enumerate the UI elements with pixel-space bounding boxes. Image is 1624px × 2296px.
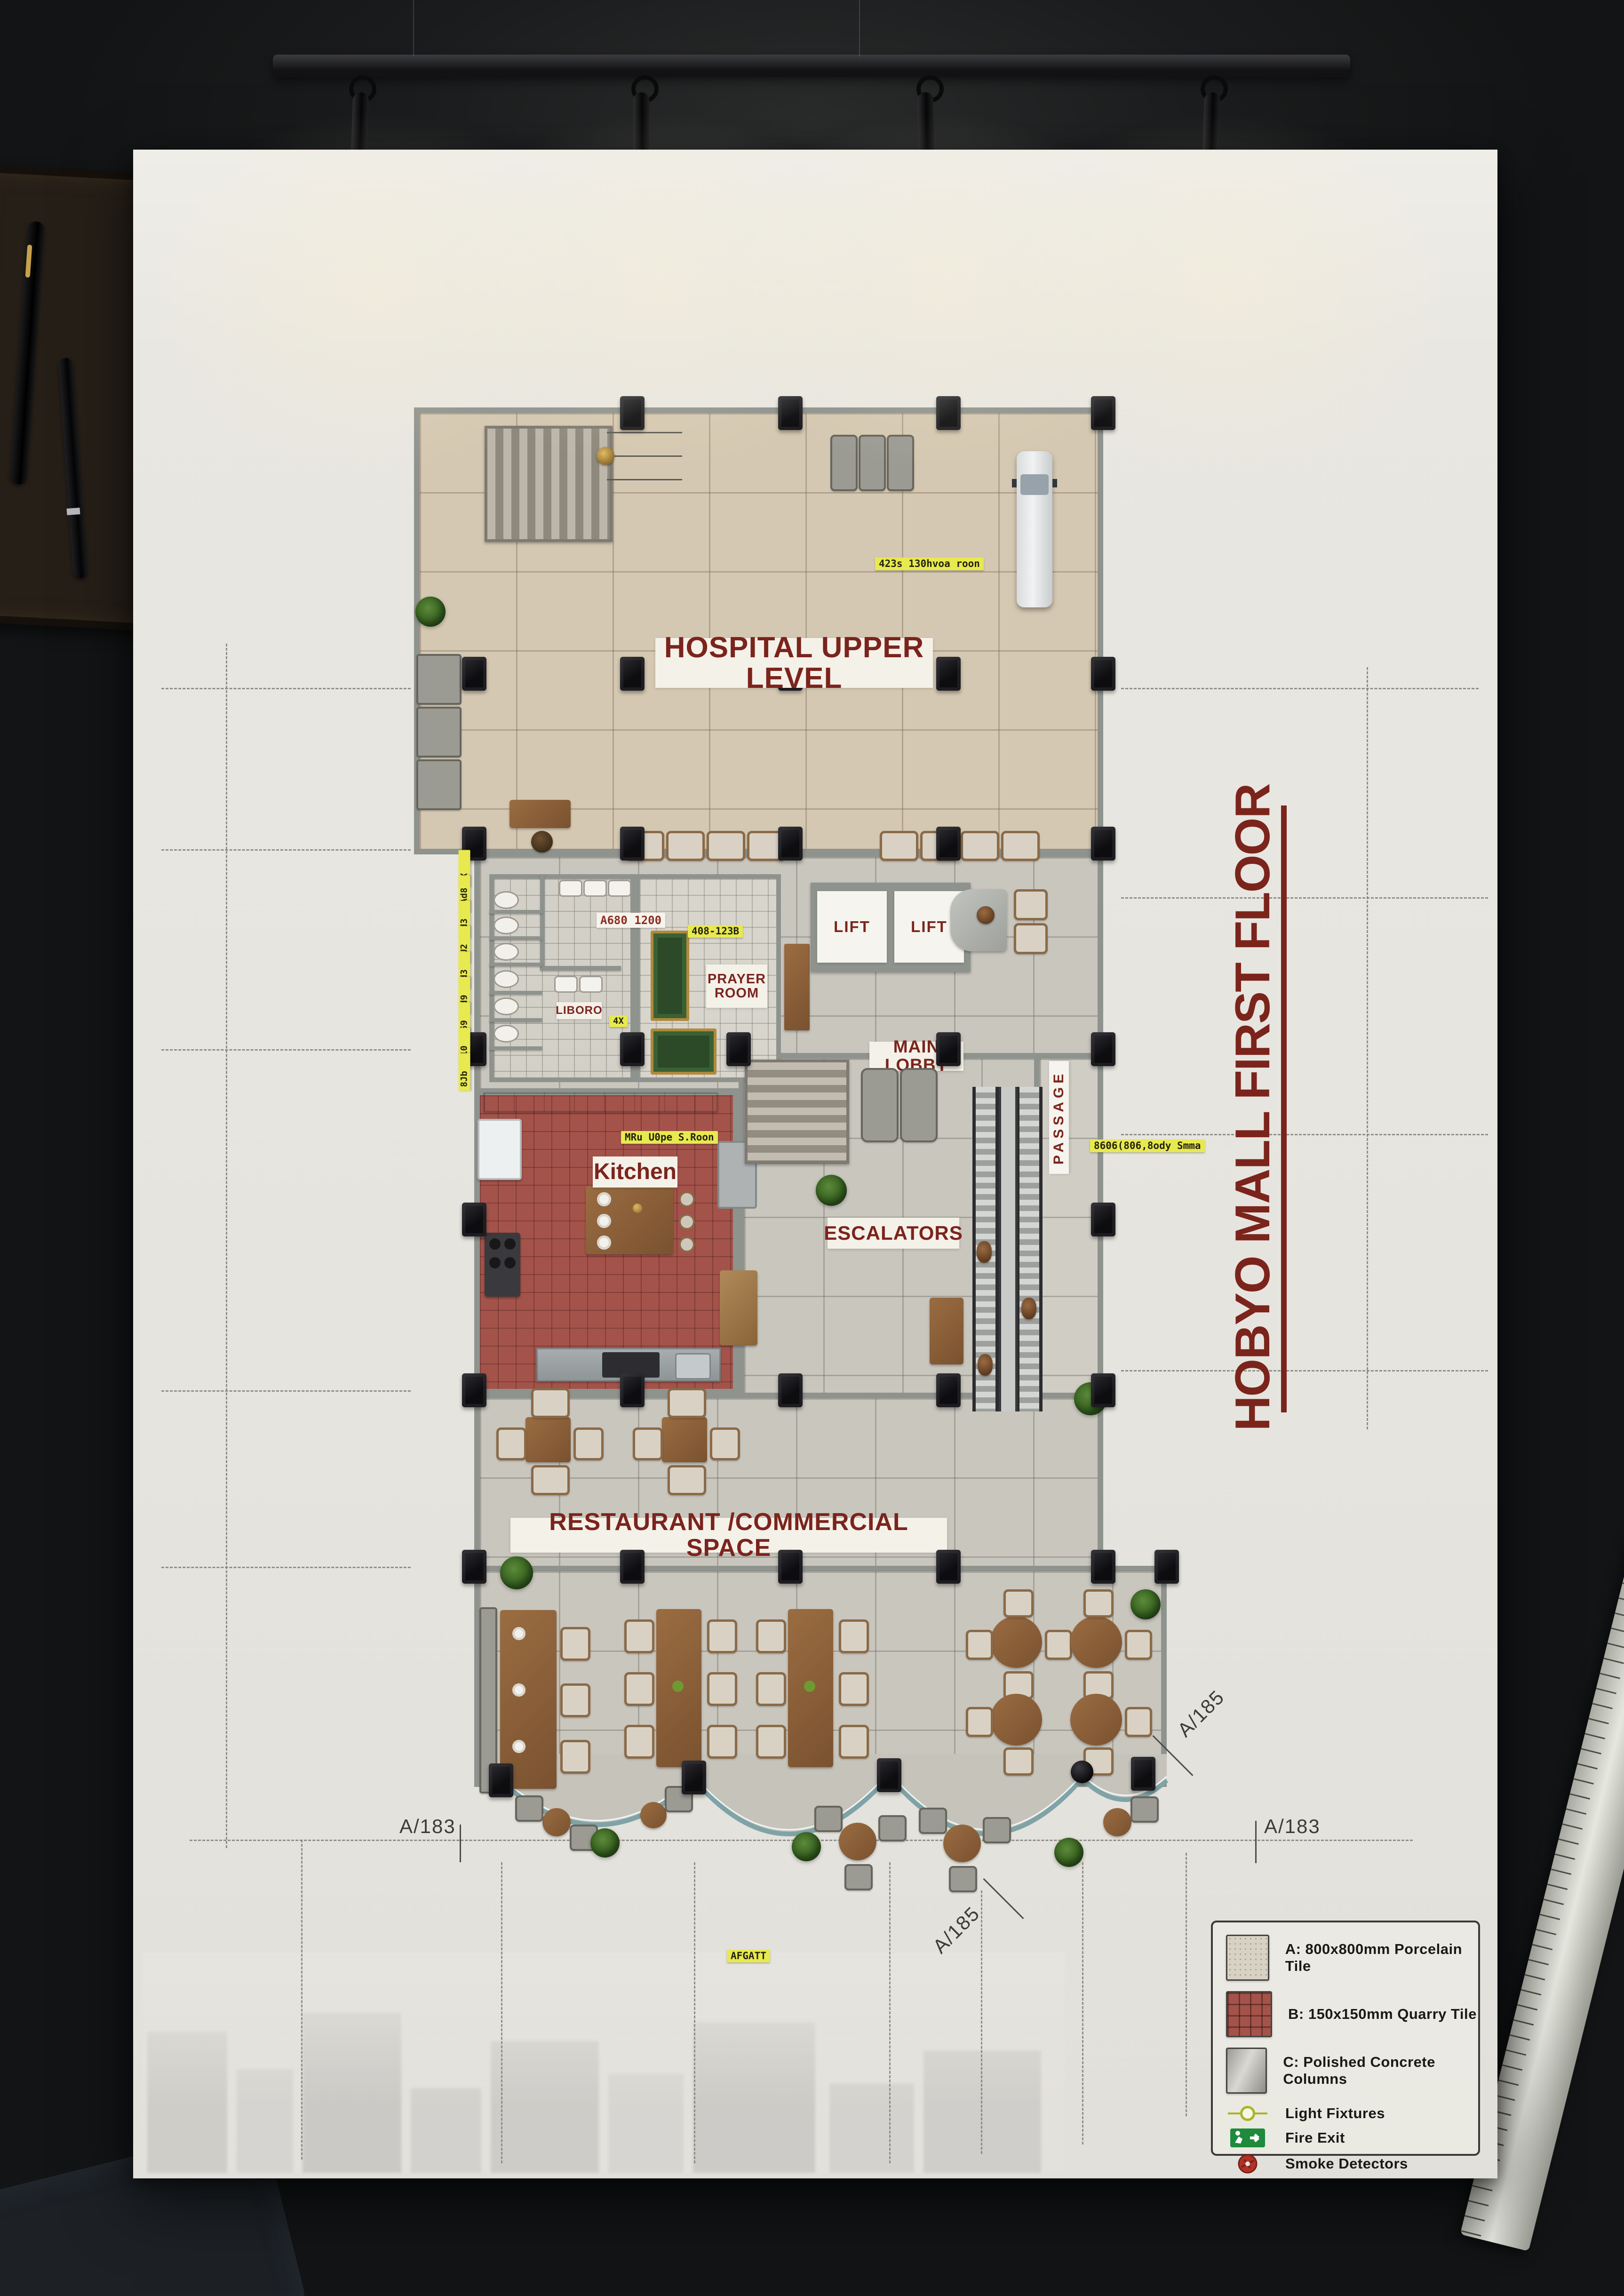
cafe-chair [878, 1815, 907, 1842]
stool [679, 1236, 695, 1252]
grid-ref-a185-lower: A/185 [929, 1902, 985, 1958]
dining-chair [966, 1630, 993, 1660]
lounge-chair [707, 831, 745, 861]
column [778, 827, 803, 861]
statue [597, 447, 614, 465]
bench [930, 1298, 963, 1364]
place-setting [512, 1740, 525, 1753]
dining-chair [624, 1619, 654, 1653]
cafe-table [839, 1823, 876, 1860]
lounger [900, 1068, 938, 1142]
column [620, 1032, 645, 1066]
stair-rail [607, 432, 682, 433]
prayer-rug [651, 1028, 716, 1075]
grid-line [161, 1049, 411, 1051]
grid-line [1121, 1370, 1488, 1371]
toilet-wall [540, 966, 621, 971]
plant [590, 1828, 620, 1858]
column [1091, 827, 1115, 861]
concrete-swatch-icon [1226, 2048, 1267, 2094]
hospital-desk [509, 800, 571, 828]
burner [489, 1257, 501, 1268]
dining-chair [1045, 1630, 1072, 1660]
toilet-label: LIBORO [557, 1002, 602, 1019]
passage-label: PASSAGE [1049, 1061, 1069, 1174]
sink [559, 880, 582, 897]
column [778, 1373, 803, 1407]
cafe-chair [983, 1817, 1011, 1843]
escalator-lane [1016, 1087, 1043, 1411]
toilet [494, 917, 519, 934]
column [462, 1373, 486, 1407]
legend-row-light: Light Fixtures [1226, 2105, 1478, 2122]
dining-chair [1083, 1589, 1114, 1618]
cafe-table [943, 1825, 981, 1862]
toilet [494, 970, 519, 988]
dining-chair [839, 1725, 869, 1759]
escalators-label-text: ESCALATORS [824, 1223, 963, 1244]
column [936, 396, 961, 430]
legend-row-smoke: Smoke Detectors [1226, 2154, 1478, 2174]
track-light-bar [273, 55, 1350, 77]
column [620, 1373, 645, 1407]
lounge-chair [1001, 831, 1040, 861]
cafe-table [542, 1808, 571, 1836]
burner [489, 1238, 501, 1250]
legend-label: C: Polished Concrete Columns [1283, 2054, 1478, 2088]
dining-table [525, 1417, 571, 1462]
stall-partition [489, 910, 542, 914]
skyline-fade [143, 1952, 1065, 2173]
grid-line [981, 1890, 982, 2154]
grid-ref-a185-upper: A/185 [1173, 1686, 1229, 1742]
column [778, 396, 803, 430]
dining-chair [633, 1427, 663, 1460]
dining-chair [707, 1619, 737, 1653]
legend-label: Fire Exit [1285, 2129, 1345, 2146]
column [1154, 1550, 1179, 1584]
column [620, 396, 645, 430]
lobby-chair [1014, 889, 1048, 920]
place-setting [512, 1627, 525, 1640]
grid-line [1186, 1853, 1187, 2116]
stair-rail [607, 479, 682, 480]
lobby-chair [1014, 923, 1048, 954]
dim-chip-prayer: 408-123B [688, 925, 743, 938]
dining-chair [839, 1672, 869, 1706]
stall-partition [489, 936, 542, 940]
dining-chair [1125, 1630, 1152, 1660]
legend-label: B: 150x150mm Quarry Tile [1288, 2006, 1477, 2023]
column [682, 1761, 706, 1794]
dining-chair [839, 1619, 869, 1653]
dining-chair [531, 1388, 570, 1418]
dining-chair [707, 1725, 737, 1759]
plant [816, 1175, 847, 1206]
legend-row-quarry: B: 150x150mm Quarry Tile [1226, 1991, 1478, 2037]
plate [597, 1192, 611, 1206]
wood-partition [784, 944, 810, 1030]
van-mirror [1052, 479, 1057, 487]
cafe-chair [949, 1866, 977, 1892]
round-table [990, 1616, 1042, 1668]
place-setting [512, 1683, 525, 1697]
dining-chair [1003, 1589, 1034, 1618]
toilet [494, 1025, 519, 1043]
lounge-chair [666, 831, 705, 861]
stall-partition [489, 963, 542, 966]
column [1091, 1203, 1115, 1236]
cafe-chair [919, 1808, 947, 1834]
column [726, 1032, 751, 1066]
column [936, 657, 961, 691]
grid-line [1121, 688, 1479, 689]
dining-chair [710, 1427, 740, 1460]
sink [608, 880, 631, 897]
centerpiece [672, 1681, 684, 1692]
grid-line [1121, 1134, 1488, 1135]
cafe-table [640, 1802, 667, 1828]
column [489, 1763, 513, 1797]
escalator-divider [999, 1087, 1018, 1411]
column [1131, 1757, 1155, 1791]
title-rule [1281, 805, 1287, 1412]
dining-chair [624, 1672, 654, 1706]
burner [504, 1238, 516, 1250]
kitchen-counter-top [484, 1092, 718, 1112]
column [936, 1550, 961, 1584]
floorplan-poster: LIBORO PRAYER ROOM LIFT LIFT MAIN LOBBY [133, 150, 1497, 2178]
grid-tick [1255, 1821, 1257, 1863]
column [620, 657, 645, 691]
grid-line [226, 644, 227, 1848]
column [936, 827, 961, 861]
restaurant-label: RESTAURANT /COMMERCIAL SPACE [510, 1518, 947, 1553]
stall-partition [489, 1018, 542, 1022]
grid-line [501, 1862, 502, 2163]
passage-label-text: PASSAGE [1051, 1070, 1067, 1164]
van-windshield [1020, 474, 1049, 495]
dining-chair [1125, 1707, 1152, 1737]
toilet [494, 997, 519, 1015]
cafe-chair [814, 1806, 843, 1832]
dim-chip-kitchen: MRu U0pe S.Roon [621, 1131, 718, 1144]
dim-label-toilet: A680 1200 [597, 913, 665, 928]
grid-line [889, 1862, 891, 2163]
dim-chip-front: AFGATT [727, 1950, 770, 1962]
plant [1054, 1838, 1083, 1867]
dim-chip-hospital: 423s 130hvoa roon [875, 558, 984, 570]
light-wire [413, 0, 414, 56]
dining-chair [756, 1672, 786, 1706]
cafe-table [1103, 1808, 1131, 1836]
stair-rail [607, 455, 682, 457]
fire-exit-icon [1226, 2129, 1269, 2147]
lift-right-text: LIFT [911, 919, 947, 935]
legend-row-fire: Fire Exit [1226, 2129, 1478, 2147]
column [620, 827, 645, 861]
dim-chip-passage: 8606(806,8ody Smma [1090, 1140, 1205, 1152]
column [462, 1550, 486, 1584]
receptionist [977, 906, 995, 924]
escalator-person [1021, 1298, 1036, 1319]
desk-scene: LIBORO PRAYER ROOM LIFT LIFT MAIN LOBBY [0, 0, 1624, 2296]
waiting-chair [887, 435, 914, 491]
escalator-person [977, 1241, 992, 1263]
legend-label: Smoke Detectors [1285, 2155, 1408, 2172]
van-mirror [1012, 479, 1017, 487]
grid-line [1367, 667, 1368, 1429]
stool [679, 1191, 695, 1207]
column [620, 1550, 645, 1584]
kitchen-label: Kitchen [593, 1156, 677, 1188]
toilet [494, 891, 519, 909]
grid-line [161, 688, 411, 689]
plate [597, 1214, 611, 1228]
plant [1130, 1589, 1161, 1619]
column [1091, 1550, 1115, 1584]
grid-line [1082, 1862, 1083, 2145]
round-table [1070, 1616, 1122, 1668]
grid-line [1121, 897, 1488, 899]
column [1091, 657, 1115, 691]
prayer-rug [651, 931, 689, 1021]
gold-bowl [633, 1204, 642, 1213]
lounge-chair [880, 831, 918, 861]
quarry-swatch-icon [1226, 1991, 1272, 2037]
dining-chair [531, 1465, 570, 1495]
lift-left-text: LIFT [834, 919, 870, 935]
burner [504, 1257, 516, 1268]
legend-box: A: 800x800mm Porcelain Tile B: 150x150mm… [1211, 1921, 1480, 2156]
grid-line [694, 1862, 695, 2163]
sink [579, 976, 603, 993]
plant [792, 1832, 821, 1861]
poster-title-text: HOBYO MALL FIRST FLOOR [1225, 784, 1281, 1431]
restaurant-label-text: RESTAURANT /COMMERCIAL SPACE [510, 1509, 947, 1561]
prep-table [720, 1270, 757, 1346]
sink [583, 880, 607, 897]
dining-table [662, 1417, 707, 1462]
column [462, 657, 486, 691]
grid-line [161, 849, 411, 851]
stool [679, 1214, 695, 1230]
sink [554, 976, 578, 993]
pen-band [67, 508, 80, 515]
plant [500, 1556, 533, 1589]
round-table [990, 1694, 1042, 1746]
grid-line [301, 1840, 303, 2160]
dining-chair [966, 1707, 993, 1737]
centerpiece [804, 1681, 815, 1692]
column [462, 1203, 486, 1236]
dining-chair [756, 1619, 786, 1653]
skyline-photo [143, 1952, 1065, 2173]
grid-line [161, 1390, 411, 1392]
column [778, 1550, 803, 1584]
dining-chair [668, 1465, 706, 1495]
column [936, 1032, 961, 1066]
fridge [478, 1119, 522, 1180]
porcelain-swatch-icon [1226, 1935, 1269, 1981]
plate [597, 1236, 611, 1250]
grid-ref-a183-left: A/183 [399, 1815, 456, 1838]
dining-chair [560, 1627, 590, 1661]
legend-label: A: 800x800mm Porcelain Tile [1285, 1941, 1478, 1975]
round-column [1071, 1761, 1093, 1783]
toilet-wall [540, 874, 545, 968]
cafe-chair [515, 1795, 543, 1822]
column [1091, 1032, 1115, 1066]
dim-chip-stall: 4X [609, 1015, 628, 1027]
dining-chair [496, 1427, 526, 1460]
poster-title: HOBYO MALL FIRST FLOOR [1225, 802, 1281, 1413]
grid-tick [460, 1825, 461, 1862]
stair-flight [745, 1060, 849, 1164]
prayer-room-label: PRAYER ROOM [706, 965, 767, 1008]
column [1091, 1373, 1115, 1407]
kitchen-label-text: Kitchen [594, 1160, 677, 1184]
light-fixture-icon [1226, 2106, 1269, 2121]
lounger [861, 1068, 899, 1142]
long-table [500, 1610, 557, 1789]
column [936, 1373, 961, 1407]
stall-partition [489, 991, 542, 995]
legend-row-porcelain: A: 800x800mm Porcelain Tile [1226, 1935, 1478, 1981]
bench-seat [416, 759, 462, 810]
dining-chair [668, 1388, 706, 1418]
column [1091, 396, 1115, 430]
legend-label: Light Fixtures [1285, 2105, 1385, 2122]
hospital-label: HOSPITAL UPPER LEVEL [655, 638, 933, 688]
legend-row-concrete: C: Polished Concrete Columns [1226, 2048, 1478, 2094]
lounge-chair [961, 831, 999, 861]
toilet-label-text: LIBORO [556, 1004, 602, 1016]
dining-chair [560, 1740, 590, 1774]
bench-seat [416, 707, 462, 757]
waiting-chair [830, 435, 858, 491]
waiting-chair [859, 435, 886, 491]
dining-chair [560, 1683, 590, 1717]
cafe-chair [844, 1864, 873, 1890]
dining-chair [624, 1725, 654, 1759]
staircase [485, 426, 613, 542]
smoke-detector-icon [1226, 2154, 1269, 2174]
round-table [1070, 1694, 1122, 1746]
bench-seat [416, 654, 462, 705]
light-wire [859, 0, 860, 56]
grid-line [161, 1567, 411, 1568]
dim-chip-stack: 8Jb [459, 1053, 470, 1091]
dining-chair [756, 1725, 786, 1759]
escalator-person [978, 1354, 993, 1376]
sink-basin [675, 1353, 711, 1379]
column [877, 1758, 901, 1792]
lift-left: LIFT [817, 891, 887, 963]
cafe-chair [1130, 1796, 1159, 1823]
grid-ref-a183-right: A/183 [1264, 1815, 1321, 1838]
prayer-room-label-text: PRAYER ROOM [706, 972, 767, 1001]
hospital-label-text: HOSPITAL UPPER LEVEL [655, 632, 933, 694]
stall-partition [489, 1046, 542, 1050]
plant [415, 597, 446, 627]
dining-chair [707, 1672, 737, 1706]
dining-chair [573, 1427, 604, 1460]
office-chair [531, 831, 553, 853]
dining-chair [1003, 1747, 1034, 1776]
escalators-label: ESCALATORS [828, 1218, 959, 1249]
toilet [494, 943, 519, 961]
